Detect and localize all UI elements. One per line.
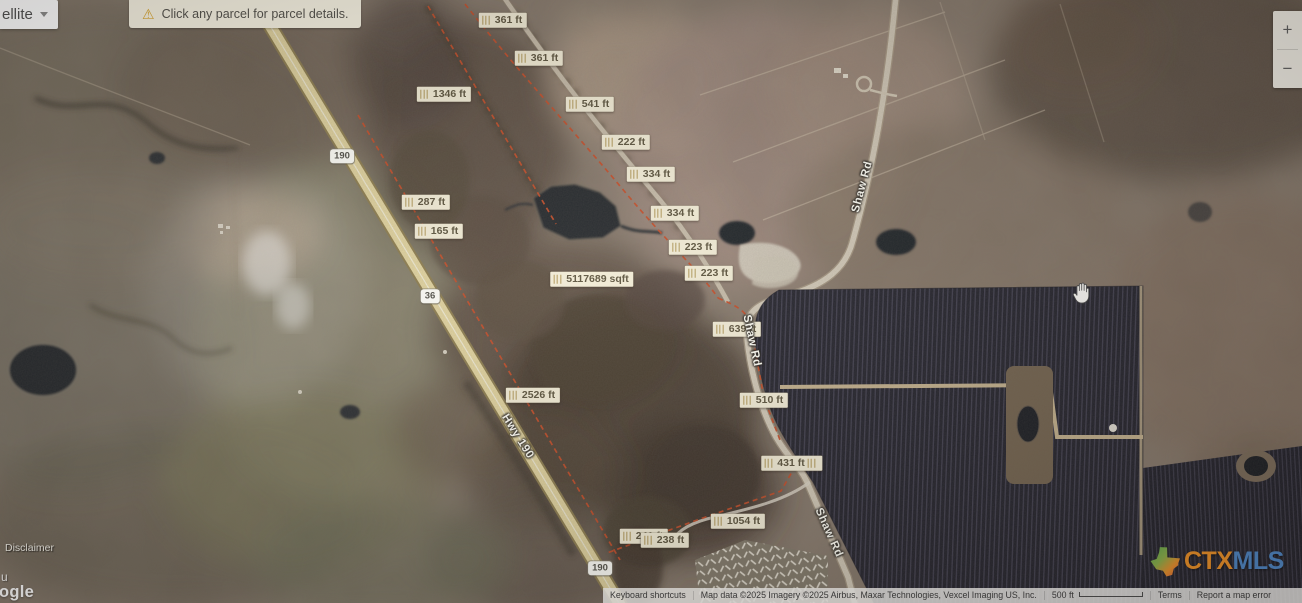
attribution-bar: Keyboard shortcuts Map data ©2025 Imager…	[603, 588, 1302, 603]
route-shield-36: 36	[421, 289, 440, 303]
mls-wordmark: MLS	[1233, 547, 1284, 575]
measurement-label: 223 ft	[685, 266, 733, 281]
ruler-ticks-icon	[569, 100, 579, 109]
ruler-ticks-icon	[509, 391, 519, 400]
google-watermark: ogle	[0, 583, 34, 602]
scale-label: 500 ft	[1052, 591, 1074, 600]
satellite-map-type-button[interactable]: ellite	[0, 0, 58, 29]
hand-cursor	[1071, 280, 1093, 306]
parcel-notice-bar: ⚠ Click any parcel for parcel details.	[129, 0, 361, 28]
disclaimer-link[interactable]: Disclaimer	[5, 542, 54, 554]
map-screenshot: 361 ft 361 ft 1346 ft 541 ft 222 ft 334 …	[0, 0, 1302, 603]
texas-state-icon	[1149, 545, 1182, 578]
measurement-label: 361 ft	[515, 51, 563, 66]
ctx-wordmark: CTX	[1184, 547, 1233, 575]
area-label: 5117689 sqft	[550, 272, 633, 287]
ruler-ticks-icon	[623, 532, 633, 541]
measurement-label: 165 ft	[415, 224, 463, 239]
ruler-ticks-icon	[405, 198, 415, 207]
ruler-ticks-icon	[714, 517, 724, 526]
zoom-in-button[interactable]: +	[1273, 11, 1302, 49]
report-map-error-link[interactable]: Report a map error	[1189, 591, 1278, 600]
route-shield-190: 190	[330, 149, 354, 163]
watermark-fragment: u	[1, 570, 8, 584]
ruler-ticks-icon	[644, 536, 654, 545]
measurement-label: 510 ft	[740, 393, 788, 408]
ctxmls-logo: CTXMLS	[1149, 545, 1284, 578]
ruler-ticks-icon	[553, 275, 563, 284]
satellite-button-label: ellite	[2, 6, 33, 23]
measurement-label: 223 ft	[669, 240, 717, 255]
ruler-ticks-icon	[482, 16, 492, 25]
scale-indicator: 500 ft	[1044, 591, 1150, 600]
measurement-label: 334 ft	[651, 206, 699, 221]
ruler-ticks-icon	[716, 325, 726, 334]
scale-bar	[1079, 592, 1143, 597]
ruler-ticks-icon	[630, 170, 640, 179]
ruler-ticks-icon	[605, 138, 615, 147]
measurement-label: 2526 ft	[506, 388, 560, 403]
measurement-label: 1054 ft	[711, 514, 765, 529]
ruler-ticks-icon	[654, 209, 664, 218]
ruler-ticks-icon	[418, 227, 428, 236]
zoom-control: + −	[1273, 11, 1302, 88]
screen-glare	[145, 165, 365, 405]
ruler-ticks-icon	[764, 459, 774, 468]
parcel-notice-text: Click any parcel for parcel details.	[162, 7, 349, 21]
measurement-label: 1346 ft	[417, 87, 471, 102]
ruler-ticks-icon	[743, 396, 753, 405]
ruler-ticks-icon	[420, 90, 430, 99]
warning-triangle-icon: ⚠	[142, 7, 155, 21]
measurement-label: 334 ft	[627, 167, 675, 182]
measurement-label: 541 ft	[566, 97, 614, 112]
measurement-label: 431 ft	[761, 456, 822, 471]
measurement-label: 287 ft	[402, 195, 450, 210]
route-shield-190: 190	[588, 561, 612, 575]
ruler-ticks-icon	[518, 54, 528, 63]
measurement-label: 361 ft	[479, 13, 527, 28]
measurement-label: 238 ft	[641, 533, 689, 548]
ruler-ticks-icon	[808, 459, 818, 468]
keyboard-shortcuts-link[interactable]: Keyboard shortcuts	[603, 591, 693, 600]
map-canvas[interactable]	[0, 0, 1302, 603]
ruler-ticks-icon	[688, 269, 698, 278]
ruler-ticks-icon	[672, 243, 682, 252]
dropdown-caret-icon	[40, 12, 48, 17]
terms-link[interactable]: Terms	[1150, 591, 1189, 600]
measurement-label: 222 ft	[602, 135, 650, 150]
map-data-text: Map data ©2025 Imagery ©2025 Airbus, Max…	[693, 591, 1044, 600]
zoom-out-button[interactable]: −	[1273, 50, 1302, 88]
